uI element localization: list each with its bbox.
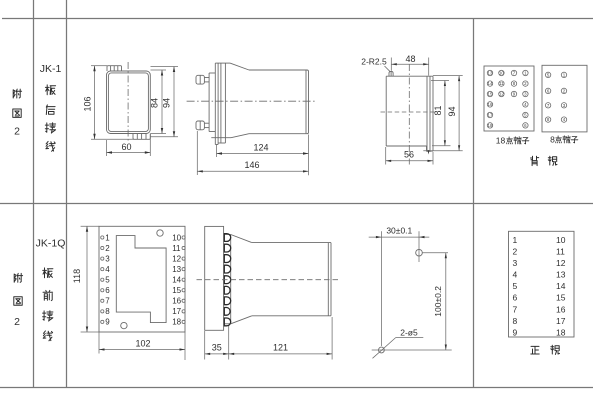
svg-text:JK-1Q: JK-1Q — [36, 238, 66, 250]
svg-text:5: 5 — [105, 276, 110, 285]
svg-text:13: 13 — [556, 270, 566, 280]
svg-text:16: 16 — [172, 297, 181, 306]
svg-text:8: 8 — [105, 307, 110, 316]
svg-text:3: 3 — [105, 254, 110, 263]
svg-text:2: 2 — [105, 244, 110, 253]
svg-text:2: 2 — [14, 126, 20, 138]
svg-text:18: 18 — [172, 318, 181, 327]
svg-text:2-ø5: 2-ø5 — [400, 327, 418, 337]
svg-text:12: 12 — [556, 258, 566, 268]
svg-text:11: 11 — [172, 244, 181, 253]
svg-text:10: 10 — [172, 233, 181, 242]
svg-text:121: 121 — [273, 343, 288, 353]
svg-text:81: 81 — [433, 105, 443, 115]
svg-text:7: 7 — [513, 304, 518, 314]
svg-text:48: 48 — [405, 54, 415, 64]
svg-text:JK-1: JK-1 — [40, 63, 62, 75]
svg-text:8: 8 — [550, 135, 555, 145]
svg-text:118: 118 — [72, 269, 82, 283]
svg-text:60: 60 — [121, 142, 131, 152]
svg-text:16: 16 — [488, 102, 493, 107]
svg-text:1: 1 — [105, 233, 110, 242]
svg-text:35: 35 — [212, 343, 222, 353]
svg-text:11: 11 — [499, 81, 504, 86]
svg-text:11: 11 — [556, 246, 565, 256]
svg-text:5: 5 — [513, 281, 518, 291]
svg-text:106: 106 — [83, 96, 93, 111]
svg-text:14: 14 — [172, 276, 181, 285]
svg-text:2: 2 — [513, 246, 518, 256]
svg-text:15: 15 — [172, 286, 181, 295]
svg-text:9: 9 — [513, 327, 518, 337]
svg-text:100±0.2: 100±0.2 — [433, 286, 443, 317]
svg-text:14: 14 — [488, 81, 493, 86]
svg-text:146: 146 — [244, 160, 259, 170]
svg-text:7: 7 — [105, 297, 110, 306]
svg-text:2-R2.5: 2-R2.5 — [361, 57, 387, 67]
svg-text:15: 15 — [488, 92, 493, 97]
svg-text:4: 4 — [513, 270, 518, 280]
svg-text:56: 56 — [404, 150, 414, 160]
svg-text:6: 6 — [513, 293, 518, 303]
svg-text:1: 1 — [513, 235, 518, 245]
svg-text:18: 18 — [496, 136, 506, 146]
svg-text:94: 94 — [162, 98, 172, 108]
svg-text:17: 17 — [172, 307, 181, 316]
svg-text:8: 8 — [513, 316, 518, 326]
svg-text:84: 84 — [150, 98, 160, 108]
svg-text:18: 18 — [488, 123, 493, 128]
svg-text:9: 9 — [105, 318, 110, 327]
svg-text:10: 10 — [556, 235, 566, 245]
svg-text:12: 12 — [499, 92, 504, 97]
svg-text:124: 124 — [253, 142, 268, 152]
svg-text:3: 3 — [513, 258, 518, 268]
svg-text:17: 17 — [488, 113, 493, 118]
svg-text:13: 13 — [488, 71, 493, 76]
svg-text:94: 94 — [447, 106, 457, 116]
svg-text:16: 16 — [556, 304, 566, 314]
svg-text:30±0.1: 30±0.1 — [386, 225, 412, 235]
svg-text:6: 6 — [105, 286, 110, 295]
svg-text:18: 18 — [556, 327, 566, 337]
svg-text:10: 10 — [499, 71, 504, 76]
svg-text:17: 17 — [556, 316, 566, 326]
svg-text:14: 14 — [556, 281, 566, 291]
svg-text:102: 102 — [135, 338, 150, 348]
svg-text:12: 12 — [172, 254, 181, 263]
svg-text:4: 4 — [105, 265, 110, 274]
svg-text:2: 2 — [14, 316, 20, 328]
svg-text:13: 13 — [172, 265, 181, 274]
svg-text:15: 15 — [556, 293, 566, 303]
